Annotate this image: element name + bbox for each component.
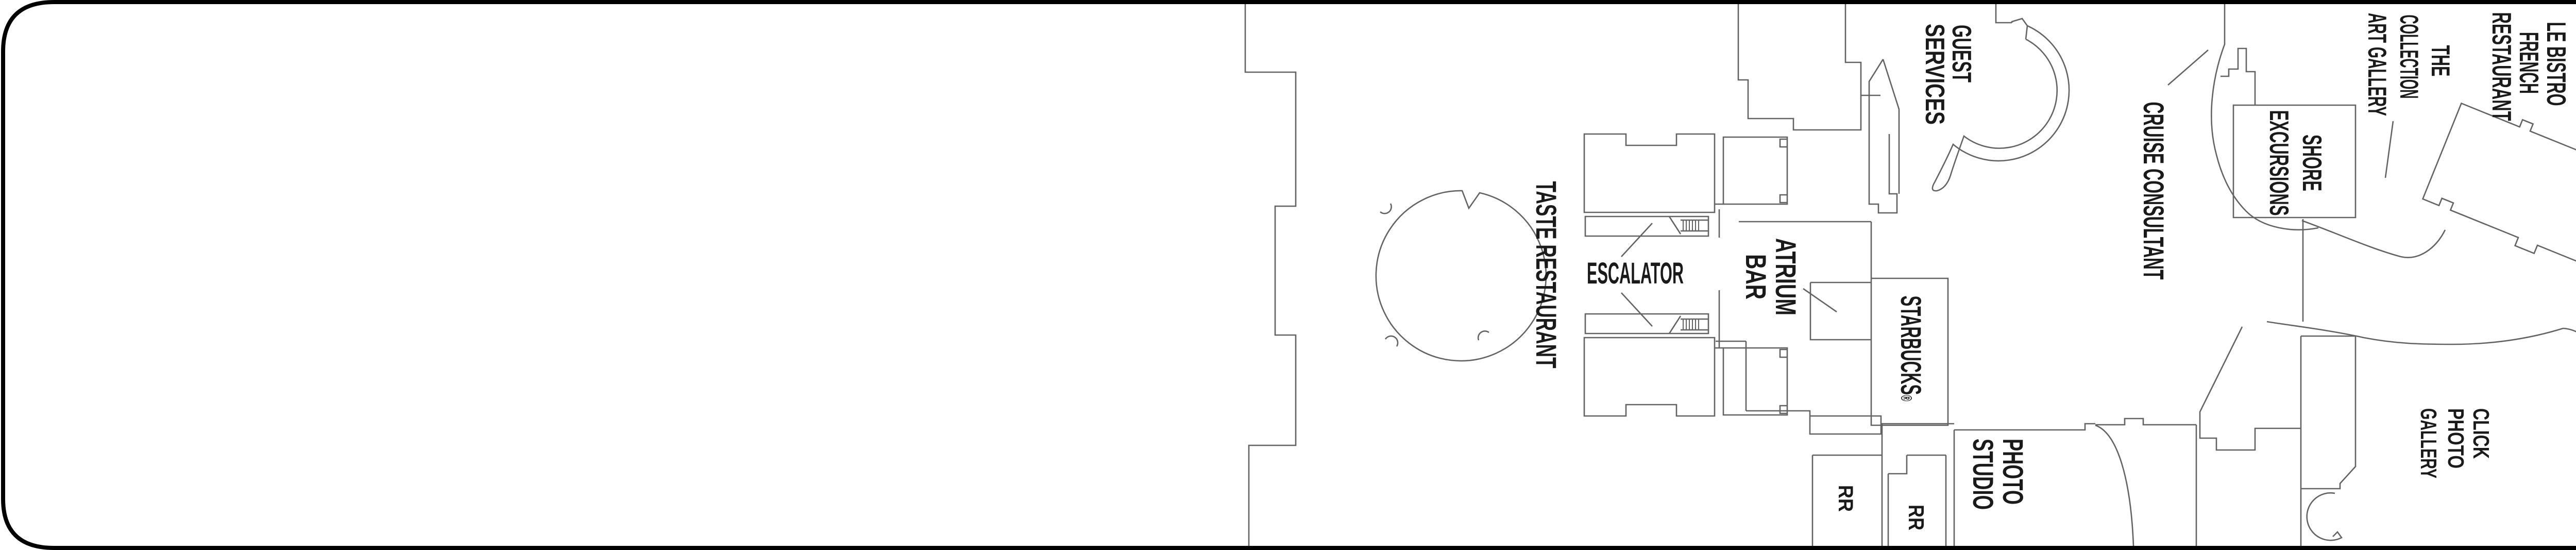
svg-text:RR: RR (1904, 505, 1928, 530)
svg-text:EXCURSIONS: EXCURSIONS (2264, 110, 2294, 216)
svg-text:STARBUCKS®: STARBUCKS® (1895, 296, 1927, 402)
svg-text:ATRIUM: ATRIUM (1770, 238, 1802, 315)
svg-text:GALLERY: GALLERY (2416, 408, 2441, 478)
svg-text:ESCALATOR: ESCALATOR (1587, 257, 1684, 290)
svg-text:FRENCH: FRENCH (2514, 32, 2544, 94)
svg-text:ART GALLERY: ART GALLERY (2363, 13, 2392, 116)
svg-text:SERVICES: SERVICES (1920, 24, 1950, 125)
svg-text:COLLECTION: COLLECTION (2395, 15, 2424, 99)
svg-text:CLICK: CLICK (2468, 408, 2494, 459)
svg-text:SHORE: SHORE (2297, 135, 2327, 191)
svg-text:PHOTO: PHOTO (1997, 439, 2029, 505)
svg-text:LE BISTRO: LE BISTRO (2541, 22, 2571, 106)
svg-text:PHOTO: PHOTO (2443, 408, 2468, 469)
svg-text:BAR: BAR (1740, 254, 1772, 299)
svg-text:THE: THE (2426, 45, 2455, 77)
svg-text:STUDIO: STUDIO (1967, 439, 1999, 510)
svg-text:TASTE RESTAURANT: TASTE RESTAURANT (1530, 181, 1563, 369)
svg-text:GUEST: GUEST (1946, 25, 1976, 82)
svg-text:CRUISE CONSULTANT: CRUISE CONSULTANT (2138, 102, 2170, 280)
svg-text:RESTAURANT: RESTAURANT (2486, 12, 2516, 121)
svg-text:RR: RR (1834, 485, 1857, 512)
